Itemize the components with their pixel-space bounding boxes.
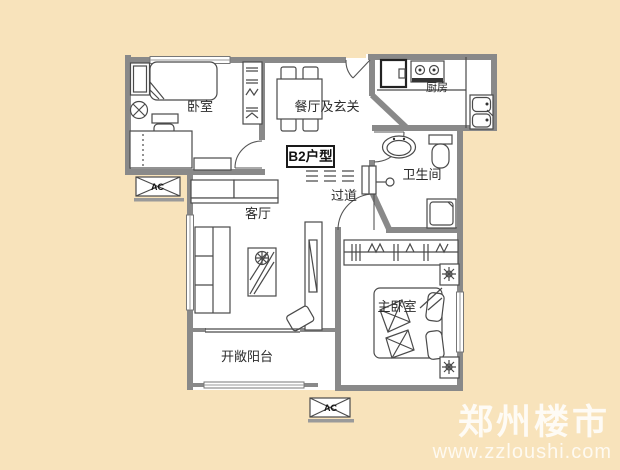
round-table <box>131 102 148 119</box>
ac-unit-bottom: AC <box>308 398 354 423</box>
bedroom-label: 卧室 <box>187 99 213 114</box>
nightstand-bottom <box>440 357 459 378</box>
wardrobe <box>243 62 262 124</box>
corridor-label: 过道 <box>331 188 357 203</box>
ac-bottom-label: AC <box>324 403 337 413</box>
sofa <box>191 180 278 203</box>
fridge <box>381 60 406 87</box>
washing-machine <box>427 199 456 228</box>
shoe-cabinet <box>362 166 376 194</box>
watermark-site-url: www.zzloushi.com <box>433 441 612 464</box>
master-wardrobe <box>344 240 458 265</box>
stove <box>411 61 444 82</box>
nightstand-top <box>440 264 459 285</box>
balcony-label: 开敞阳台 <box>221 349 273 364</box>
kitchen-sink <box>470 95 493 129</box>
watermark-site-name: 郑州楼市 <box>440 404 610 443</box>
bench <box>194 158 231 170</box>
bathroom-sink <box>383 136 416 158</box>
living-room-window <box>187 215 194 310</box>
floorplan-canvas: AC AC B2户型 卧室 餐厅及玄关 厨房 卫生间 过道 客厅 主卧室 开敞阳… <box>0 0 620 470</box>
kitchen-label: 厨房 <box>426 81 448 94</box>
ac-left-label: AC <box>151 182 164 192</box>
floorplan-svg: AC AC B2户型 卧室 餐厅及玄关 厨房 卫生间 过道 客厅 主卧室 开敞阳… <box>0 0 620 470</box>
unit-type-label: B2户型 <box>288 148 333 164</box>
master-bedroom-label: 主卧室 <box>377 299 416 314</box>
bathroom-label: 卫生间 <box>402 167 441 182</box>
coffee-table <box>248 248 276 296</box>
ac-unit-left: AC <box>134 177 184 202</box>
toilet <box>429 135 452 168</box>
living-room-label: 客厅 <box>245 206 271 221</box>
long-desk <box>130 131 192 168</box>
chaise-sofa <box>195 227 230 313</box>
bed-single <box>131 62 218 100</box>
master-bedroom-window <box>457 292 464 352</box>
balcony-railing-window <box>204 382 304 388</box>
dining-foyer-label: 餐厅及玄关 <box>294 99 359 114</box>
unit-type-badge: B2户型 <box>287 146 334 167</box>
